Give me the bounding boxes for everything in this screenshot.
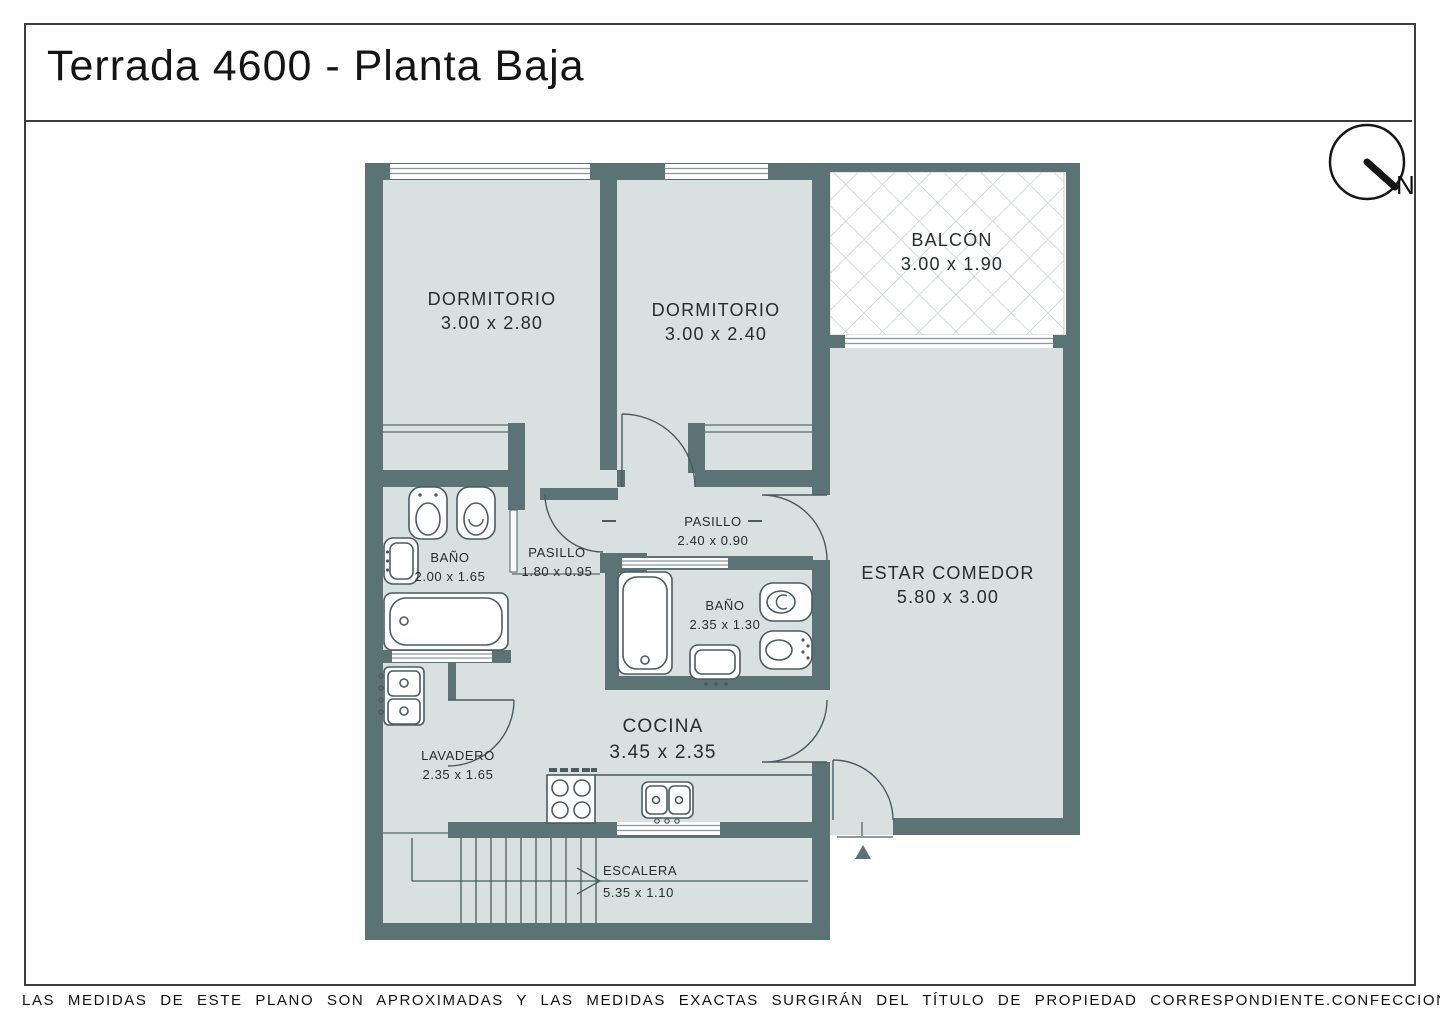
room-dims: 3.00 x 1.90: [901, 252, 1003, 276]
room-dims: 3.00 x 2.40: [652, 322, 781, 346]
toilet-banio-2: [760, 583, 812, 621]
room-label-pasillo-1: PASILLO 2.40 x 0.90: [678, 512, 749, 550]
room-label-banio-1: BAÑO 2.00 x 1.65: [415, 548, 486, 586]
kitchen-sink: [642, 782, 693, 823]
footer: LAS MEDIDAS DE ESTE PLANO SON APROXIMADA…: [22, 992, 1422, 1009]
sink-banio-1: [384, 538, 418, 584]
footer-credit: CONFECCIONADO POR ESTUDIO NARTEX: [1332, 992, 1440, 1009]
room-name: COCINA: [609, 714, 716, 740]
room-name: BAÑO: [415, 548, 486, 567]
laundry-sink: [379, 667, 424, 725]
stove: [547, 768, 597, 823]
balcony-sliding-door: [845, 335, 1053, 348]
room-name: LAVADERO: [421, 746, 495, 765]
room-dims: 2.35 x 1.65: [421, 765, 495, 784]
bathtub-banio-2: [618, 572, 672, 674]
room-dims: 3.45 x 2.35: [609, 740, 716, 766]
window-dormitorio-1: [390, 164, 590, 179]
room-dims: 1.80 x 0.95: [522, 562, 593, 581]
room-dims: 5.80 x 3.00: [861, 585, 1034, 609]
entry-arrow-marker: [855, 845, 871, 859]
room-name: DORMITORIO: [652, 298, 781, 322]
room-name: BALCÓN: [901, 228, 1003, 252]
room-label-escalera: ESCALERA 5.35 x 1.10: [603, 860, 677, 904]
room-name: ESTAR COMEDOR: [861, 561, 1034, 585]
north-label: N: [1396, 170, 1415, 201]
room-label-balcon: BALCÓN 3.00 x 1.90: [901, 228, 1003, 276]
door-leaf-banio-1: [510, 510, 517, 572]
window-dormitorio-2: [665, 164, 768, 179]
toilet-banio-1: [457, 487, 495, 539]
room-label-pasillo-2: PASILLO 1.80 x 0.95: [522, 543, 593, 581]
room-label-estar-comedor: ESTAR COMEDOR 5.80 x 3.00: [861, 561, 1034, 609]
north-compass: [1330, 125, 1404, 199]
room-label-cocina: COCINA 3.45 x 2.35: [609, 714, 716, 766]
floor-plan-graphic: [0, 0, 1440, 1018]
bidet-banio-2: [760, 631, 812, 669]
bidet-banio-1: [409, 487, 447, 539]
window-cocina: [617, 822, 720, 835]
room-name: ESCALERA: [603, 860, 677, 882]
room-label-banio-2: BAÑO 2.35 x 1.30: [690, 596, 761, 634]
room-name: PASILLO: [678, 512, 749, 531]
room-name: DORMITORIO: [428, 287, 557, 311]
window-banio-1: [392, 651, 492, 662]
room-dims: 2.35 x 1.30: [690, 615, 761, 634]
bathtub-banio-1: [384, 593, 508, 650]
room-label-dormitorio-1: DORMITORIO 3.00 x 2.80: [428, 287, 557, 335]
room-dims: 2.40 x 0.90: [678, 531, 749, 550]
room-name: BAÑO: [690, 596, 761, 615]
room-label-lavadero: LAVADERO 2.35 x 1.65: [421, 746, 495, 784]
window-banio-2: [622, 558, 728, 568]
room-label-dormitorio-2: DORMITORIO 3.00 x 2.40: [652, 298, 781, 346]
room-name: PASILLO: [522, 543, 593, 562]
room-dims: 2.00 x 1.65: [415, 567, 486, 586]
room-dims: 3.00 x 2.80: [428, 311, 557, 335]
footer-disclaimer: LAS MEDIDAS DE ESTE PLANO SON APROXIMADA…: [22, 992, 1332, 1009]
room-dims: 5.35 x 1.10: [603, 882, 677, 904]
